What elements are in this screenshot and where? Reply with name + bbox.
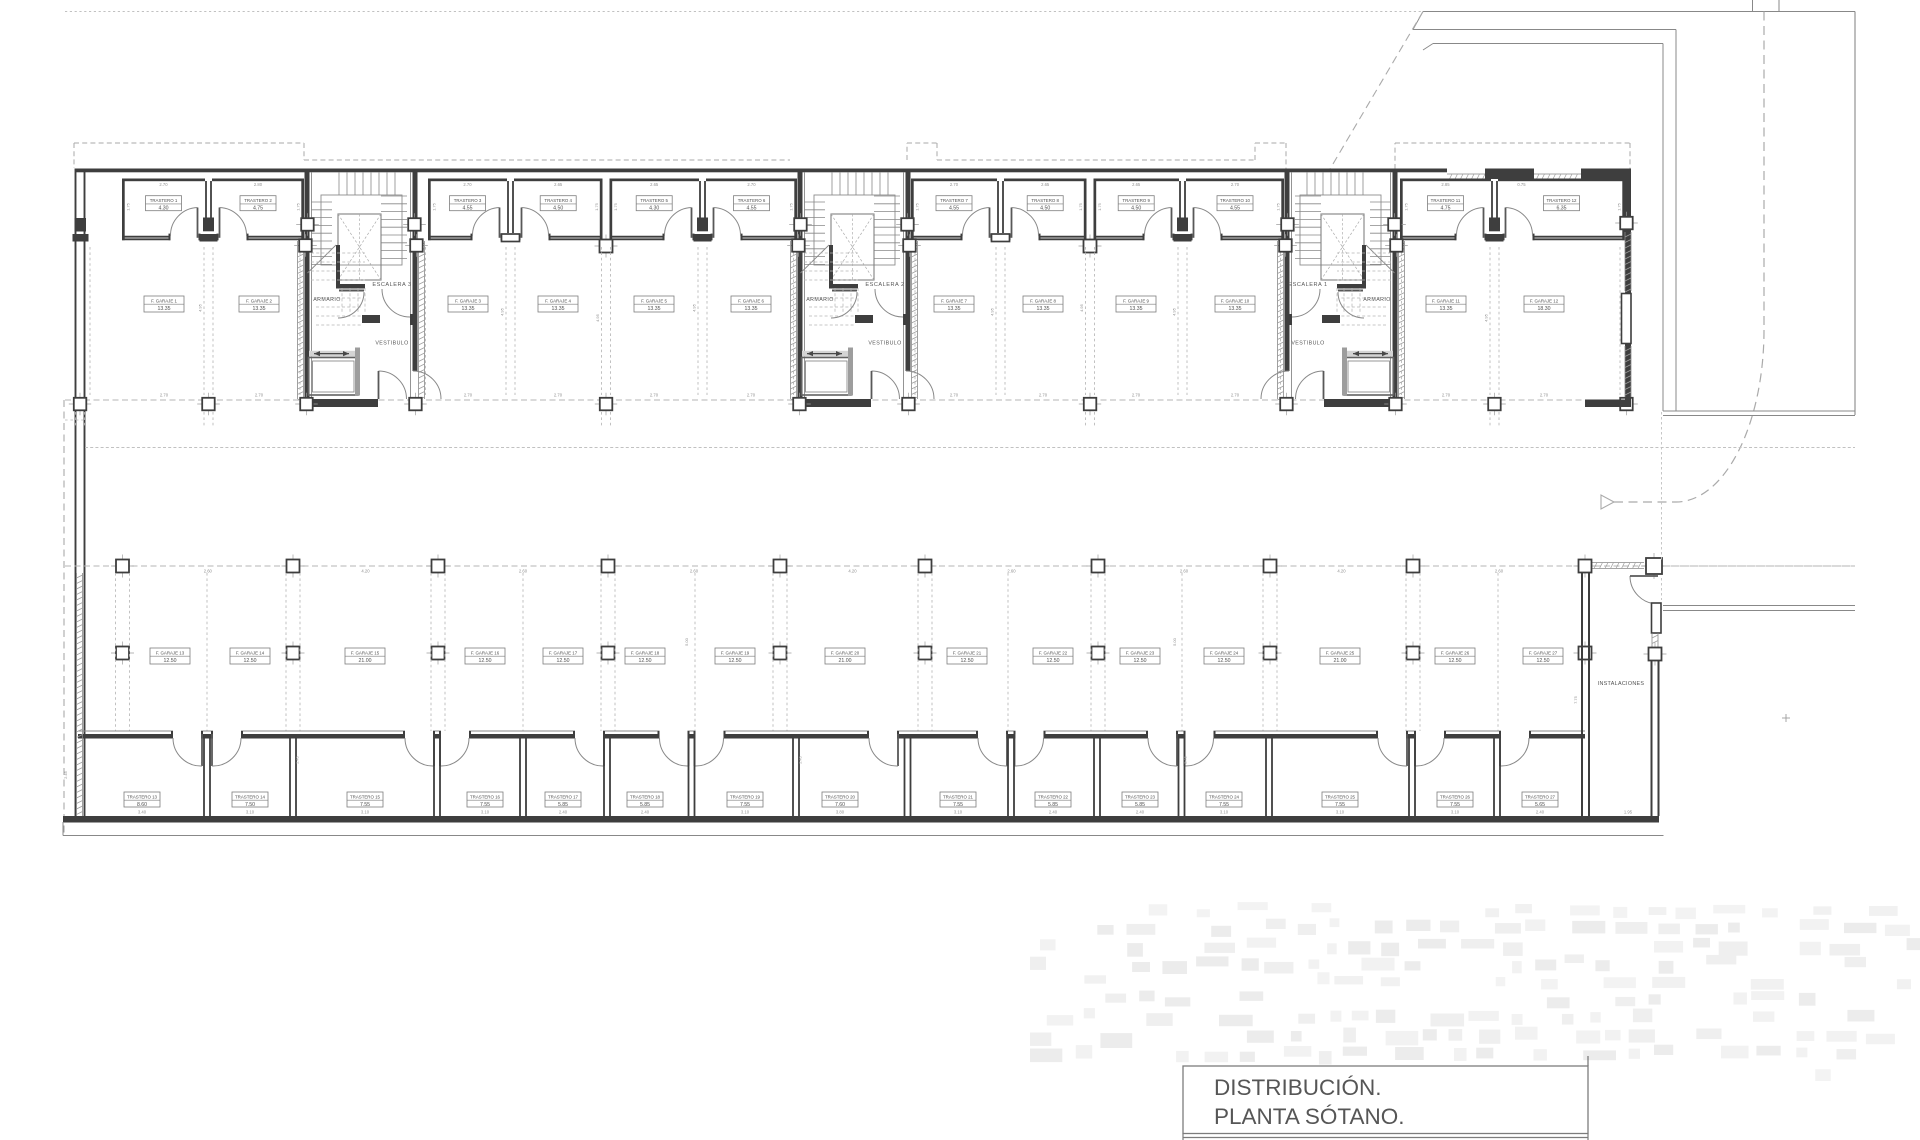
- svg-text:4.75: 4.75: [253, 206, 263, 212]
- svg-text:1.75: 1.75: [613, 203, 618, 211]
- svg-text:4.20: 4.20: [848, 569, 857, 574]
- svg-text:VESTIBULO: VESTIBULO: [1291, 341, 1324, 347]
- svg-text:F. GARAJE 18: F. GARAJE 18: [631, 650, 660, 655]
- svg-text:TRASTERO 13: TRASTERO 13: [127, 794, 158, 799]
- svg-text:12.50: 12.50: [1449, 658, 1462, 664]
- svg-text:TRASTERO 4: TRASTERO 4: [544, 198, 572, 203]
- svg-text:4.30: 4.30: [158, 206, 168, 212]
- svg-text:1.75: 1.75: [296, 203, 301, 211]
- svg-text:2.70: 2.70: [950, 393, 959, 398]
- svg-text:3.40: 3.40: [138, 810, 147, 815]
- svg-text:7.75: 7.75: [1573, 695, 1578, 704]
- svg-text:4.55: 4.55: [746, 206, 756, 212]
- svg-text:13.35: 13.35: [462, 306, 475, 312]
- svg-text:2.70: 2.70: [747, 393, 756, 398]
- svg-text:1.75: 1.75: [594, 203, 599, 211]
- svg-text:F. GARAJE 7: F. GARAJE 7: [941, 298, 967, 303]
- svg-text:2.45: 2.45: [798, 755, 803, 764]
- svg-text:F. GARAJE 6: F. GARAJE 6: [738, 298, 764, 303]
- svg-text:4.55: 4.55: [462, 206, 472, 212]
- svg-text:2.70: 2.70: [255, 393, 264, 398]
- svg-text:ESCALERA 1: ESCALERA 1: [1288, 282, 1327, 288]
- svg-text:7.55: 7.55: [1450, 802, 1460, 808]
- svg-text:2.40: 2.40: [641, 810, 650, 815]
- svg-text:2.70: 2.70: [1442, 393, 1451, 398]
- svg-text:2.65: 2.65: [1132, 182, 1141, 187]
- svg-text:13.35: 13.35: [1037, 306, 1050, 312]
- svg-text:13.35: 13.35: [745, 306, 758, 312]
- svg-text:7.55: 7.55: [360, 802, 370, 808]
- svg-text:TRASTERO 26: TRASTERO 26: [1440, 794, 1471, 799]
- svg-text:12.50: 12.50: [557, 658, 570, 664]
- svg-text:VESTIBULO: VESTIBULO: [375, 341, 408, 347]
- svg-text:5.85: 5.85: [1135, 802, 1145, 808]
- svg-text:7.55: 7.55: [953, 802, 963, 808]
- svg-text:F. GARAJE 24: F. GARAJE 24: [1210, 650, 1239, 655]
- svg-text:TRASTERO 12: TRASTERO 12: [1546, 198, 1577, 203]
- svg-text:F. GARAJE 9: F. GARAJE 9: [1123, 298, 1149, 303]
- svg-text:1.75: 1.75: [1078, 203, 1083, 211]
- svg-text:F. GARAJE 26: F. GARAJE 26: [1441, 650, 1470, 655]
- svg-text:7.55: 7.55: [1219, 802, 1229, 808]
- svg-text:4.95: 4.95: [1079, 303, 1084, 312]
- svg-text:12.50: 12.50: [1218, 658, 1231, 664]
- svg-text:F. GARAJE 10: F. GARAJE 10: [1221, 298, 1250, 303]
- svg-text:TRASTERO 27: TRASTERO 27: [1525, 794, 1556, 799]
- svg-text:3.10: 3.10: [246, 810, 255, 815]
- svg-text:4.95: 4.95: [1484, 313, 1489, 322]
- svg-text:TRASTERO 18: TRASTERO 18: [630, 794, 661, 799]
- svg-text:2.80: 2.80: [254, 182, 263, 187]
- svg-text:2.70: 2.70: [650, 393, 659, 398]
- svg-text:5.85: 5.85: [558, 802, 568, 808]
- svg-text:2.45: 2.45: [295, 755, 300, 764]
- svg-text:3.80: 3.80: [836, 810, 845, 815]
- svg-text:2.70: 2.70: [747, 182, 756, 187]
- svg-text:TRASTERO 23: TRASTERO 23: [1125, 794, 1156, 799]
- svg-text:F. GARAJE 1: F. GARAJE 1: [151, 298, 177, 303]
- svg-text:DISTRIBUCIÓN.: DISTRIBUCIÓN.: [1214, 1075, 1382, 1100]
- svg-text:INSTALACIONES: INSTALACIONES: [1598, 681, 1645, 687]
- svg-text:13.35: 13.35: [552, 306, 565, 312]
- svg-text:2.60: 2.60: [1180, 569, 1189, 574]
- svg-text:7.60: 7.60: [835, 802, 845, 808]
- svg-text:12.50: 12.50: [244, 658, 257, 664]
- svg-text:4.20: 4.20: [361, 569, 370, 574]
- svg-text:F. GARAJE 11: F. GARAJE 11: [1432, 298, 1461, 303]
- svg-text:F. GARAJE 14: F. GARAJE 14: [236, 650, 265, 655]
- svg-text:TRASTERO 2: TRASTERO 2: [244, 198, 272, 203]
- svg-text:F. GARAJE 23: F. GARAJE 23: [1126, 650, 1155, 655]
- svg-text:13.35: 13.35: [648, 306, 661, 312]
- svg-text:2.40: 2.40: [1049, 810, 1058, 815]
- svg-text:1.75: 1.75: [789, 203, 794, 211]
- svg-text:2.70: 2.70: [554, 393, 563, 398]
- svg-text:TRASTERO 16: TRASTERO 16: [470, 794, 501, 799]
- svg-text:2.70: 2.70: [159, 182, 168, 187]
- svg-text:2.70: 2.70: [1039, 393, 1048, 398]
- svg-text:2.70: 2.70: [1231, 393, 1240, 398]
- svg-text:12.50: 12.50: [1537, 658, 1550, 664]
- svg-text:3.10: 3.10: [1220, 810, 1229, 815]
- svg-text:13.35: 13.35: [1229, 306, 1242, 312]
- svg-text:1.75: 1.75: [1097, 203, 1102, 211]
- svg-text:5.85: 5.85: [640, 802, 650, 808]
- svg-text:F. GARAJE 8: F. GARAJE 8: [1030, 298, 1056, 303]
- svg-text:1.75: 1.75: [1276, 203, 1281, 211]
- svg-text:8.60: 8.60: [137, 802, 147, 808]
- svg-text:1.75: 1.75: [1617, 203, 1622, 211]
- svg-text:3.10: 3.10: [481, 810, 490, 815]
- svg-text:ARMARIO: ARMARIO: [313, 297, 341, 303]
- svg-text:4.50: 4.50: [1131, 206, 1141, 212]
- svg-text:4.75: 4.75: [1440, 206, 1450, 212]
- svg-text:4.55: 4.55: [1230, 206, 1240, 212]
- svg-text:7.55: 7.55: [740, 802, 750, 808]
- svg-text:12.50: 12.50: [639, 658, 652, 664]
- svg-text:1.75: 1.75: [1404, 203, 1409, 211]
- svg-text:12.50: 12.50: [164, 658, 177, 664]
- svg-text:4.95: 4.95: [198, 303, 203, 312]
- svg-text:21.00: 21.00: [359, 658, 372, 664]
- svg-text:2.70: 2.70: [1540, 393, 1549, 398]
- svg-text:2.60: 2.60: [204, 569, 213, 574]
- svg-text:2.70: 2.70: [464, 393, 473, 398]
- svg-text:13.35: 13.35: [158, 306, 171, 312]
- svg-text:13.35: 13.35: [1130, 306, 1143, 312]
- svg-text:7.50: 7.50: [245, 802, 255, 808]
- svg-text:7.55: 7.55: [1335, 802, 1345, 808]
- svg-text:PLANTA SÓTANO.: PLANTA SÓTANO.: [1214, 1104, 1404, 1129]
- svg-text:F. GARAJE 12: F. GARAJE 12: [1530, 298, 1559, 303]
- svg-text:3.10: 3.10: [361, 810, 370, 815]
- svg-text:3.10: 3.10: [954, 810, 963, 815]
- svg-text:TRASTERO 5: TRASTERO 5: [640, 198, 668, 203]
- svg-text:4.55: 4.55: [949, 206, 959, 212]
- svg-text:1.75: 1.75: [915, 203, 920, 211]
- svg-text:2.65: 2.65: [1041, 182, 1050, 187]
- svg-text:2.60: 2.60: [1495, 569, 1504, 574]
- svg-text:TRASTERO 25: TRASTERO 25: [1325, 794, 1356, 799]
- svg-text:TRASTERO 1: TRASTERO 1: [150, 198, 178, 203]
- svg-text:2.60: 2.60: [690, 569, 699, 574]
- svg-text:2.45: 2.45: [1183, 755, 1188, 764]
- svg-text:2.60: 2.60: [1007, 569, 1016, 574]
- svg-text:12.50: 12.50: [729, 658, 742, 664]
- svg-text:F. GARAJE 27: F. GARAJE 27: [1529, 650, 1558, 655]
- svg-text:5.00: 5.00: [1172, 637, 1177, 646]
- svg-text:4.50: 4.50: [553, 206, 563, 212]
- svg-text:TRASTERO 8: TRASTERO 8: [1031, 198, 1059, 203]
- svg-text:3.10: 3.10: [1336, 810, 1345, 815]
- svg-text:1.75: 1.75: [126, 203, 131, 211]
- svg-text:F. GARAJE 17: F. GARAJE 17: [549, 650, 578, 655]
- svg-text:12.50: 12.50: [479, 658, 492, 664]
- svg-text:TRASTERO 7: TRASTERO 7: [940, 198, 968, 203]
- svg-text:4.95: 4.95: [692, 303, 697, 312]
- svg-text:ARMARIO: ARMARIO: [1363, 297, 1391, 303]
- svg-text:4.95: 4.95: [1172, 307, 1177, 316]
- svg-text:13.35: 13.35: [253, 306, 266, 312]
- svg-text:4.50: 4.50: [1040, 206, 1050, 212]
- svg-text:TRASTERO 11: TRASTERO 11: [1431, 198, 1461, 203]
- svg-text:12.50: 12.50: [1134, 658, 1147, 664]
- svg-text:21.00: 21.00: [1334, 658, 1347, 664]
- svg-text:5.00: 5.00: [684, 637, 689, 646]
- svg-text:2.70: 2.70: [463, 182, 472, 187]
- svg-text:VESTIBULO: VESTIBULO: [868, 341, 901, 347]
- svg-text:5.85: 5.85: [1048, 802, 1058, 808]
- svg-text:2.65: 2.65: [554, 182, 563, 187]
- svg-text:4.20: 4.20: [1337, 569, 1346, 574]
- svg-text:TRASTERO 15: TRASTERO 15: [350, 794, 381, 799]
- svg-text:TRASTERO 24: TRASTERO 24: [1209, 794, 1240, 799]
- svg-text:1.75: 1.75: [432, 203, 437, 211]
- svg-text:7.55: 7.55: [480, 802, 490, 808]
- svg-text:2.45: 2.45: [63, 770, 68, 779]
- svg-text:F. GARAJE 25: F. GARAJE 25: [1326, 650, 1355, 655]
- svg-text:4.95: 4.95: [595, 313, 600, 322]
- svg-text:F. GARAJE 22: F. GARAJE 22: [1039, 650, 1068, 655]
- svg-text:TRASTERO 14: TRASTERO 14: [235, 794, 266, 799]
- svg-text:ARMARIO: ARMARIO: [806, 297, 834, 303]
- svg-text:2.85: 2.85: [1441, 182, 1450, 187]
- svg-text:2.65: 2.65: [650, 182, 659, 187]
- svg-text:2.40: 2.40: [559, 810, 568, 815]
- svg-text:ESCALERA 3: ESCALERA 3: [372, 282, 411, 288]
- svg-text:F. GARAJE 2: F. GARAJE 2: [246, 298, 272, 303]
- svg-text:TRASTERO 22: TRASTERO 22: [1038, 794, 1069, 799]
- svg-text:F. GARAJE 15: F. GARAJE 15: [351, 650, 380, 655]
- svg-text:4.30: 4.30: [649, 206, 659, 212]
- svg-text:TRASTERO 10: TRASTERO 10: [1220, 198, 1251, 203]
- svg-text:TRASTERO 6: TRASTERO 6: [738, 198, 766, 203]
- svg-text:4.95: 4.95: [990, 307, 995, 316]
- svg-text:4.95: 4.95: [500, 307, 505, 316]
- svg-text:12.50: 12.50: [1047, 658, 1060, 664]
- svg-text:13.35: 13.35: [1440, 306, 1453, 312]
- svg-text:TRASTERO 17: TRASTERO 17: [548, 794, 579, 799]
- svg-text:TRASTERO 21: TRASTERO 21: [943, 794, 974, 799]
- svg-text:2.70: 2.70: [950, 182, 959, 187]
- svg-text:TRASTERO 20: TRASTERO 20: [825, 794, 856, 799]
- svg-text:ESCALERA 2: ESCALERA 2: [865, 282, 904, 288]
- svg-text:2.60: 2.60: [519, 569, 528, 574]
- svg-text:F. GARAJE 13: F. GARAJE 13: [156, 650, 185, 655]
- svg-text:2.70: 2.70: [1132, 393, 1141, 398]
- svg-text:3.10: 3.10: [1451, 810, 1460, 815]
- svg-text:F. GARAJE 16: F. GARAJE 16: [471, 650, 500, 655]
- svg-text:TRASTERO 3: TRASTERO 3: [454, 198, 482, 203]
- svg-text:2.40: 2.40: [1136, 810, 1145, 815]
- svg-text:6.35: 6.35: [1556, 206, 1566, 212]
- svg-text:F. GARAJE 3: F. GARAJE 3: [455, 298, 481, 303]
- svg-text:F. GARAJE 5: F. GARAJE 5: [641, 298, 667, 303]
- svg-text:12.50: 12.50: [961, 658, 974, 664]
- svg-text:18.30: 18.30: [1538, 306, 1551, 312]
- svg-text:0.75: 0.75: [1517, 182, 1526, 187]
- svg-text:5.65: 5.65: [1535, 802, 1545, 808]
- svg-text:F. GARAJE 4: F. GARAJE 4: [545, 298, 571, 303]
- svg-text:21.00: 21.00: [839, 658, 852, 664]
- svg-text:3.10: 3.10: [741, 810, 750, 815]
- svg-text:13.35: 13.35: [948, 306, 961, 312]
- svg-text:2.70: 2.70: [160, 393, 169, 398]
- svg-text:TRASTERO 19: TRASTERO 19: [730, 794, 761, 799]
- svg-text:F. GARAJE 21: F. GARAJE 21: [953, 650, 982, 655]
- svg-text:F. GARAJE 19: F. GARAJE 19: [721, 650, 750, 655]
- svg-text:TRASTERO 9: TRASTERO 9: [1122, 198, 1150, 203]
- svg-text:2.70: 2.70: [1231, 182, 1240, 187]
- svg-text:F. GARAJE 20: F. GARAJE 20: [831, 650, 860, 655]
- svg-text:2.40: 2.40: [1536, 810, 1545, 815]
- svg-text:1.95: 1.95: [1624, 810, 1633, 815]
